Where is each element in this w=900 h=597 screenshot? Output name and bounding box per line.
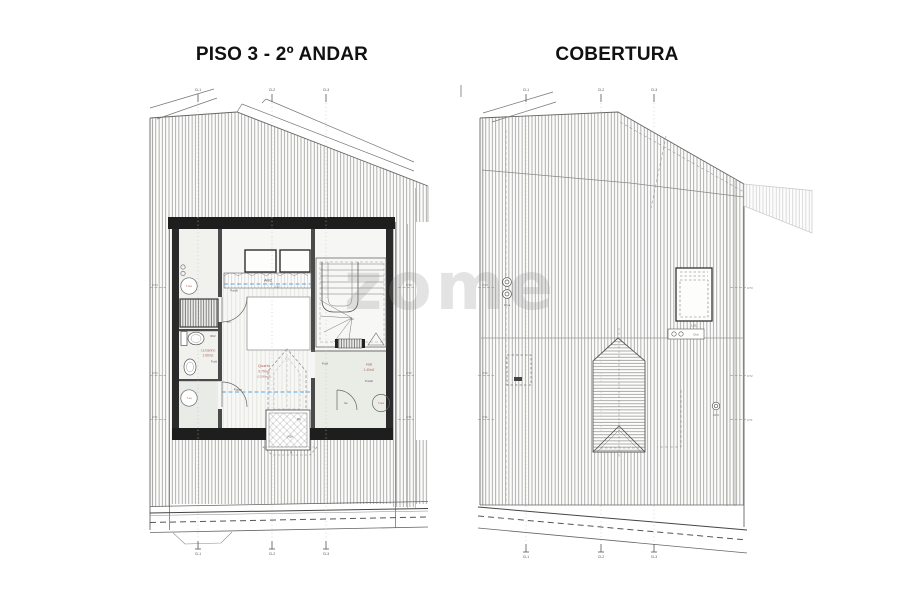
stair-tag: LH	[350, 317, 353, 321]
grid-label: CL2	[598, 88, 604, 92]
door-tag: P.a/d	[322, 362, 329, 366]
shower	[180, 299, 218, 327]
floor-plan	[150, 89, 428, 544]
room-label-banho: I.s.banho	[201, 349, 216, 353]
grid-label: CL1	[195, 88, 201, 92]
staircase	[316, 258, 386, 348]
section-label: CT3	[482, 283, 488, 287]
section-label: CT2	[747, 374, 753, 378]
bay-window	[260, 410, 317, 455]
section-label: CT2	[406, 371, 412, 375]
street-band	[478, 507, 747, 553]
vent-label: Ch4	[713, 413, 719, 417]
grid-label: CL1	[195, 552, 201, 556]
roof-plan	[478, 92, 812, 553]
section-label: CT1	[406, 415, 412, 419]
drain-label: T.ass	[378, 401, 385, 405]
room-area-quarto-total: (13.80m2)	[257, 375, 271, 379]
door-tag: P.a/d	[211, 360, 218, 364]
section-label: CT2	[152, 371, 158, 375]
bidet-icon	[184, 359, 196, 375]
plan-title-left: PISO 3 - 2º ANDAR	[140, 44, 424, 66]
drain-label: T.aq	[187, 396, 192, 400]
architectural-sheet: CL1 CL2 CL3 CL1 CL2 CL3 CL1 CL2 CL3 CL1 …	[0, 0, 900, 597]
grid-label: CL3	[651, 555, 657, 559]
door-tag: P.a/d6	[230, 289, 238, 293]
door-tag: Ph	[227, 320, 231, 324]
room-area-banho: 2.66m2	[203, 354, 214, 358]
section-label: CT3	[406, 283, 412, 287]
room-label-hall: Hall	[366, 363, 372, 367]
street-band	[150, 502, 428, 545]
door-tag: Rb2	[210, 334, 216, 338]
toilet-icon	[188, 332, 204, 345]
grid-label: CL3	[323, 552, 329, 556]
section-label: CT1	[482, 415, 488, 419]
section-label: CT2	[482, 371, 488, 375]
neighbor-roof	[744, 184, 812, 233]
section-label: CT3	[747, 286, 753, 290]
grid-label: CL1	[523, 555, 529, 559]
window-tag: Dg	[297, 417, 301, 421]
vent-label: Ch.a	[504, 303, 511, 307]
door-tag: P.a/d2	[365, 379, 373, 383]
grid-label: CL2	[269, 88, 275, 92]
grid-label: CL2	[598, 555, 604, 559]
vent-label: Ch.b	[693, 333, 699, 337]
section-label: CT3	[152, 283, 158, 287]
grid-label: CL3	[651, 88, 657, 92]
room-area-quarto: 9.79m2	[258, 370, 269, 374]
height-line-label: 1.80	[274, 285, 280, 289]
section-label: CT1	[152, 415, 158, 419]
room-label-quarto: Quarto	[258, 363, 271, 368]
grid-label: CL1	[523, 88, 529, 92]
section-label: CT1	[747, 418, 753, 422]
grid-label: CL2	[269, 552, 275, 556]
drawing-canvas: CL1 CL2 CL3 CL1 CL2 CL3 CL1 CL2 CL3 CL1 …	[0, 0, 900, 597]
skylight-label: LS1	[691, 324, 697, 328]
toilet-tank	[181, 332, 187, 346]
door-tag: P.appe	[234, 388, 243, 392]
grid-label: CL3	[323, 88, 329, 92]
room-area-hall: 1.40m2	[364, 368, 375, 372]
drain-label: T.ass	[186, 284, 193, 288]
skylight-box	[245, 250, 276, 272]
window-tag: JV1b	[287, 435, 293, 439]
skylight-box	[280, 250, 310, 272]
plan-title-right: COBERTURA	[468, 44, 766, 66]
door-tag: Ge	[344, 401, 348, 405]
roof-skylight	[676, 268, 712, 321]
bed	[247, 297, 310, 350]
wardrobe-label: Arm2	[264, 279, 272, 283]
